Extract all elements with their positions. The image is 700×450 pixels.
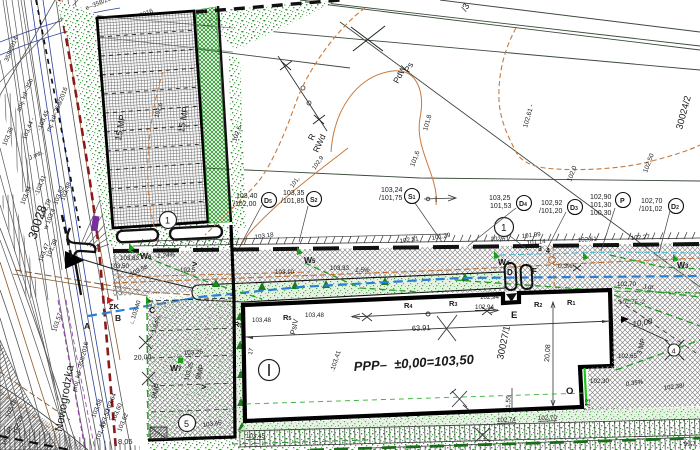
svg-text:102,70: 102,70 — [538, 414, 558, 422]
svg-text:63.91: 63.91 — [412, 323, 431, 333]
svg-text:/101,85: /101,85 — [281, 198, 304, 205]
svg-text:S2: S2 — [310, 197, 318, 204]
svg-text:103,48: 103,48 — [305, 312, 324, 319]
svg-text:102,92: 102,92 — [541, 200, 563, 207]
svg-text:/102,00: /102,00 — [233, 201, 256, 208]
svg-text:102,90: 102,90 — [590, 194, 612, 201]
svg-text:103,33: 103,33 — [330, 265, 349, 272]
svg-text:103,25: 103,25 — [489, 195, 511, 202]
svg-text:102,27: 102,27 — [631, 234, 651, 242]
svg-text:P: P — [620, 198, 625, 205]
svg-text:D4: D4 — [519, 201, 527, 208]
svg-text:/101,75: /101,75 — [379, 195, 402, 202]
svg-text:8,05: 8,05 — [118, 437, 133, 446]
svg-text:102,70: 102,70 — [641, 198, 663, 205]
svg-text:103,40: 103,40 — [236, 193, 258, 200]
svg-text:A: A — [84, 321, 90, 331]
svg-text:- 99,7: - 99,7 — [680, 441, 696, 448]
svg-text:O: O — [566, 386, 573, 397]
svg-text:/101,02: /101,02 — [639, 206, 662, 213]
svg-text:>: > — [201, 382, 206, 392]
svg-text:/101,20: /101,20 — [539, 208, 562, 215]
svg-text:3: 3 — [538, 246, 542, 253]
svg-text:4: 4 — [546, 248, 550, 255]
svg-text:100,30: 100,30 — [590, 210, 612, 217]
svg-text:5: 5 — [184, 419, 189, 429]
svg-text:S1: S1 — [408, 194, 416, 201]
svg-text:D: D — [507, 268, 513, 277]
svg-text:1,55: 1,55 — [505, 395, 512, 408]
svg-text:-1,24%: -1,24% — [155, 252, 176, 260]
svg-text:1,5%: 1,5% — [355, 267, 370, 274]
svg-text:4: 4 — [672, 347, 676, 356]
svg-text:101,30: 101,30 — [590, 202, 612, 209]
svg-text:D5: D5 — [264, 198, 272, 205]
svg-text:102,94: 102,94 — [475, 304, 494, 311]
svg-text:103,35: 103,35 — [283, 190, 305, 197]
svg-text:D3: D3 — [570, 205, 578, 212]
svg-text:20,08: 20,08 — [544, 344, 552, 362]
svg-text:102,30: 102,30 — [590, 378, 609, 385]
svg-text:101,53: 101,53 — [490, 203, 512, 210]
svg-text:E: E — [511, 310, 517, 321]
svg-text:0,3%: 0,3% — [558, 263, 573, 270]
svg-text:103,26: 103,26 — [184, 349, 204, 357]
svg-text:103,24: 103,24 — [381, 187, 403, 194]
svg-text:C: C — [149, 305, 155, 315]
svg-text:D2: D2 — [671, 204, 679, 211]
svg-text:102,65: 102,65 — [618, 353, 637, 360]
svg-text:102,94: 102,94 — [480, 294, 499, 301]
svg-text:103,45: 103,45 — [246, 433, 265, 440]
svg-text:B: B — [115, 313, 121, 323]
svg-text:102,61: 102,61 — [490, 236, 509, 243]
svg-text:F: F — [532, 267, 537, 276]
svg-text:103,48: 103,48 — [252, 317, 271, 324]
svg-text:>: > — [192, 259, 197, 269]
svg-text:102,70: 102,70 — [617, 281, 636, 288]
svg-text:1: 1 — [501, 223, 507, 234]
svg-text:103,50: 103,50 — [110, 263, 129, 270]
svg-text:102,74: 102,74 — [497, 416, 517, 424]
svg-text:ZK: ZK — [109, 302, 120, 311]
svg-text:103,10: 103,10 — [275, 269, 294, 276]
svg-text:103,83: 103,83 — [120, 255, 139, 262]
svg-text:1: 1 — [165, 216, 170, 226]
svg-text:20,00: 20,00 — [134, 354, 152, 362]
svg-text:102,51: 102,51 — [578, 236, 598, 244]
